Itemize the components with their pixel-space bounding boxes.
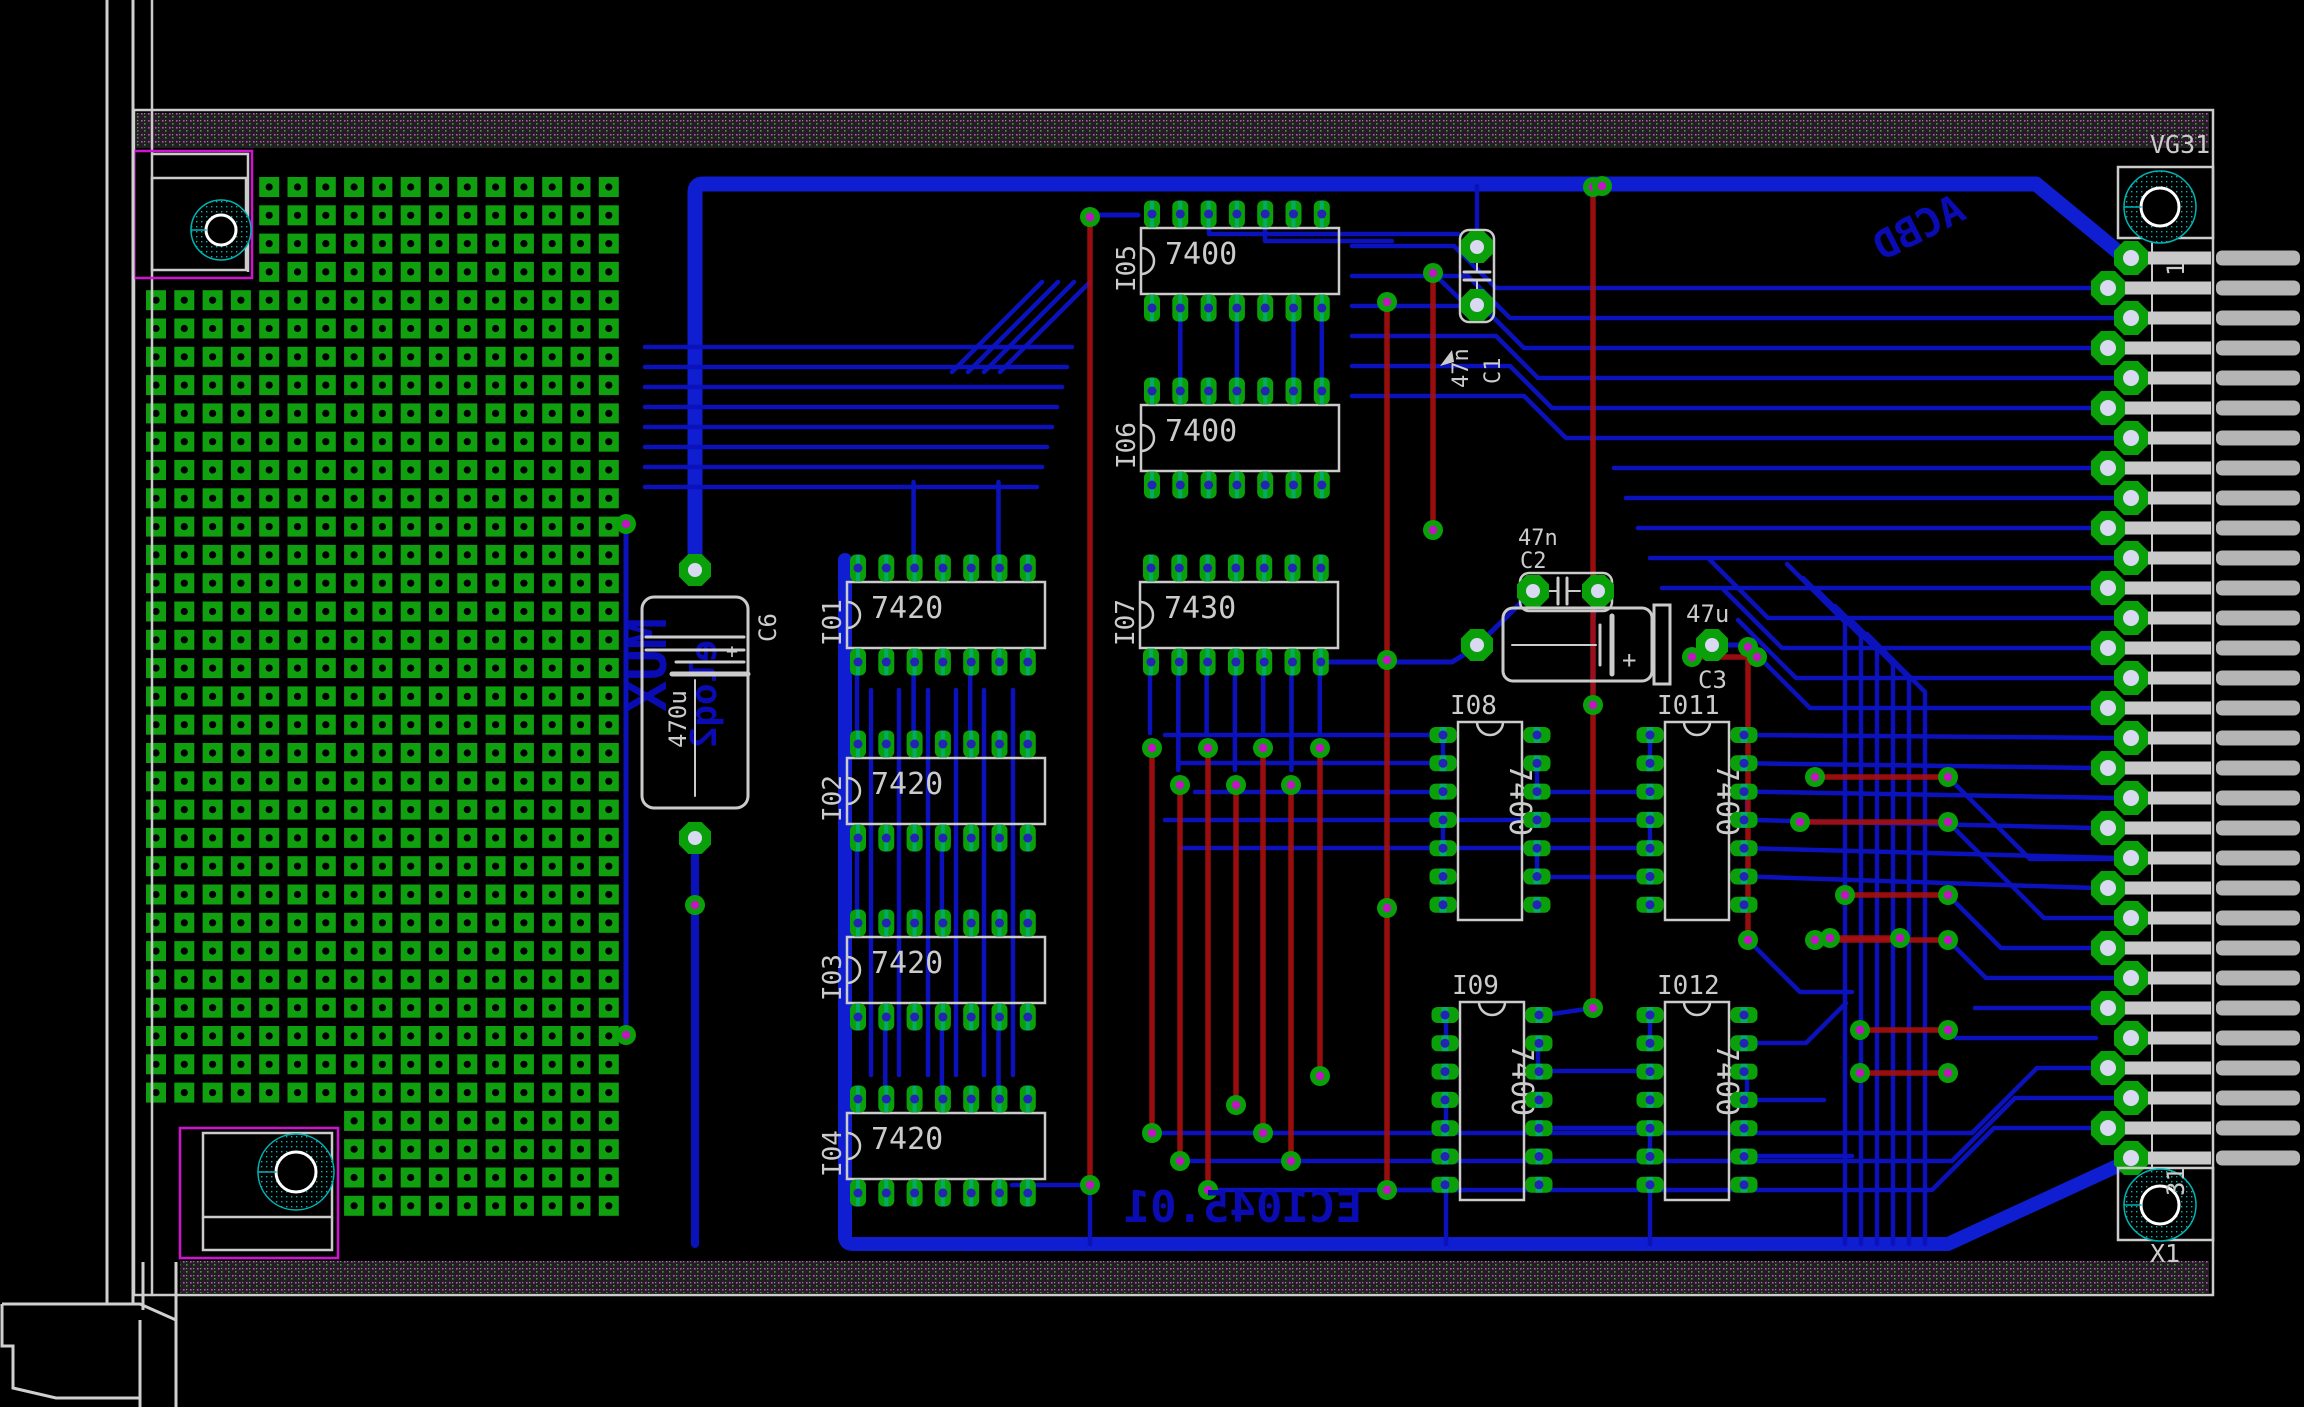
grid-pad-hole [407, 1032, 414, 1039]
component-pad[interactable] [1228, 555, 1244, 582]
grid-pad-hole [266, 863, 273, 870]
grid-pad-hole [294, 721, 301, 728]
component-pad[interactable] [1314, 472, 1330, 499]
pin-feed-trace[interactable] [1749, 763, 2095, 768]
component-pad[interactable] [1143, 555, 1159, 582]
component-pad[interactable] [878, 825, 894, 852]
component-I05[interactable]: 7400I05 [1112, 228, 1339, 294]
grid-pad-hole [492, 495, 499, 502]
component-pad[interactable] [1430, 727, 1457, 743]
connector-finger[interactable] [2216, 941, 2300, 956]
component-pad[interactable] [992, 649, 1008, 676]
component-pad[interactable] [1731, 1007, 1758, 1023]
component-pad[interactable] [963, 1004, 979, 1031]
component-pad[interactable] [1731, 897, 1758, 913]
trace[interactable] [1209, 215, 1458, 234]
component-pad[interactable] [1020, 1086, 1036, 1113]
component-pad[interactable] [1526, 1120, 1553, 1136]
component-pad[interactable] [850, 1004, 866, 1031]
grid-pad-hole [549, 1004, 556, 1011]
connector-finger[interactable] [2216, 401, 2300, 416]
component-pad[interactable] [907, 1004, 923, 1031]
connector-finger[interactable] [2216, 521, 2300, 536]
component-pad[interactable] [963, 910, 979, 937]
grid-pad-hole [407, 778, 414, 785]
component-pad[interactable] [878, 1086, 894, 1113]
component-pad[interactable] [1200, 555, 1216, 582]
component-pad[interactable] [1430, 869, 1457, 885]
grid-pad-hole [577, 834, 584, 841]
component-pad[interactable] [992, 555, 1008, 582]
trace[interactable] [1948, 895, 2096, 948]
component-pad[interactable] [1314, 201, 1330, 228]
component-pad[interactable] [1229, 295, 1245, 322]
component-pad[interactable] [878, 1180, 894, 1207]
component-pad[interactable] [1020, 1004, 1036, 1031]
component-pad[interactable] [1637, 1035, 1664, 1051]
power-bus-bottom[interactable] [845, 560, 2126, 1244]
component-pad[interactable] [935, 555, 951, 582]
component-pad[interactable] [1526, 1092, 1553, 1108]
connector-pin-hole [2100, 880, 2116, 896]
ic-notch [1684, 1002, 1710, 1015]
trace[interactable] [1748, 940, 1852, 992]
component-pad[interactable] [1314, 378, 1330, 405]
grid-pad-hole [209, 948, 216, 955]
grid-pad-hole [464, 410, 471, 417]
grid-pad-hole [407, 1202, 414, 1209]
bus-weave-trace[interactable] [1787, 564, 1845, 1244]
connector-finger[interactable] [2216, 311, 2300, 326]
component-pad[interactable] [1172, 472, 1188, 499]
grid-pad-hole [209, 693, 216, 700]
component-pad[interactable] [1432, 1120, 1459, 1136]
component-pad[interactable] [1257, 378, 1273, 405]
component-pad[interactable] [907, 731, 923, 758]
grid-pad-hole [520, 721, 527, 728]
component-I06[interactable]: 7400I06 [1112, 405, 1339, 471]
component-pad[interactable] [1637, 1007, 1664, 1023]
copper-traces-top-layer [626, 184, 2128, 1244]
grid-pad-hole [152, 551, 159, 558]
grid-pad-hole [407, 834, 414, 841]
component-pad[interactable] [1731, 755, 1758, 771]
component-pad[interactable] [1524, 727, 1551, 743]
component-pad[interactable] [1201, 201, 1217, 228]
connector-finger[interactable] [2216, 851, 2300, 866]
component-I08[interactable]: 7400I08 [1450, 691, 1537, 920]
grid-pad-hole [351, 636, 358, 643]
grid-pad-hole [294, 834, 301, 841]
component-pad[interactable] [907, 1180, 923, 1207]
grid-pad-hole [464, 382, 471, 389]
component-pad[interactable] [1201, 472, 1217, 499]
connector-finger[interactable] [2216, 251, 2300, 266]
component-pad[interactable] [1526, 1064, 1553, 1080]
component-pad[interactable] [1144, 378, 1160, 405]
component-pad[interactable] [1256, 555, 1272, 582]
connector-finger[interactable] [2216, 551, 2300, 566]
grid-pad-hole [152, 297, 159, 304]
component-pad[interactable] [1430, 840, 1457, 856]
grid-pad-hole [266, 183, 273, 190]
grid-pad-hole [379, 212, 386, 219]
component-pad[interactable] [907, 649, 923, 676]
grid-pad-hole [351, 551, 358, 558]
component-pad[interactable] [963, 555, 979, 582]
grid-pad-hole [577, 1032, 584, 1039]
component-pad[interactable] [878, 731, 894, 758]
component-pad[interactable] [1524, 784, 1551, 800]
pin-feed-trace[interactable] [1749, 735, 2118, 738]
component-pad[interactable] [907, 1086, 923, 1113]
grid-pad-hole [492, 580, 499, 587]
component-pad[interactable] [1524, 812, 1551, 828]
grid-pad-hole [181, 551, 188, 558]
grid-pad-hole [464, 1032, 471, 1039]
component-pad[interactable] [1201, 295, 1217, 322]
component-pad[interactable] [1229, 201, 1245, 228]
component-pad[interactable] [1526, 1149, 1553, 1165]
component-pad[interactable] [1637, 784, 1664, 800]
grid-pad-hole [266, 523, 273, 530]
component-pad[interactable] [1201, 378, 1217, 405]
grid-pad-hole [322, 353, 329, 360]
component-pad[interactable] [992, 1004, 1008, 1031]
component-pad[interactable] [992, 1086, 1008, 1113]
grid-pad-hole [181, 523, 188, 530]
component-pad[interactable] [878, 1004, 894, 1031]
component-pad[interactable] [1172, 201, 1188, 228]
component-I011[interactable]: 7400I011 [1657, 691, 1744, 920]
component-pad[interactable] [1020, 825, 1036, 852]
via-hole [1826, 934, 1834, 942]
component-I04[interactable]: 7420I04 [818, 1113, 1045, 1179]
component-pad[interactable] [1020, 649, 1036, 676]
connector-finger[interactable] [2216, 1151, 2300, 1166]
component-pad[interactable] [850, 731, 866, 758]
silkscreen-text: C3 [1698, 666, 1727, 694]
silkscreen-text: I06 [1112, 422, 1142, 469]
connector-finger[interactable] [2216, 671, 2300, 686]
component-pad[interactable] [1731, 1149, 1758, 1165]
grid-pad-hole [237, 382, 244, 389]
component-pad[interactable] [907, 555, 923, 582]
component-pad[interactable] [963, 649, 979, 676]
connector-finger[interactable] [2216, 581, 2300, 596]
component-pad[interactable] [1524, 840, 1551, 856]
connector-finger[interactable] [2216, 761, 2300, 776]
component-pad[interactable] [1020, 910, 1036, 937]
pin-feed-trace[interactable] [1749, 792, 2118, 798]
connector-finger[interactable] [2216, 1061, 2300, 1076]
component-pad[interactable] [1731, 1092, 1758, 1108]
component-pad[interactable] [1286, 201, 1302, 228]
component-pad[interactable] [1731, 1064, 1758, 1080]
grid-pad-hole [237, 1004, 244, 1011]
grid-pad-hole [435, 1117, 442, 1124]
component-pad[interactable] [1314, 295, 1330, 322]
component-pad[interactable] [1171, 555, 1187, 582]
component-pad[interactable] [1229, 378, 1245, 405]
connector-finger[interactable] [2216, 881, 2300, 896]
component-pad[interactable] [1637, 812, 1664, 828]
connector-finger[interactable] [2216, 911, 2300, 926]
component-pad[interactable] [1637, 1149, 1664, 1165]
component-pad[interactable] [1144, 295, 1160, 322]
connector-finger[interactable] [2216, 341, 2300, 356]
connector-finger[interactable] [2216, 491, 2300, 506]
component-pad[interactable] [1432, 1177, 1459, 1193]
component-pad[interactable] [907, 825, 923, 852]
component-pad[interactable] [1731, 784, 1758, 800]
component-pad[interactable] [935, 649, 951, 676]
component-pad[interactable] [1229, 472, 1245, 499]
via-hole [1176, 1157, 1184, 1165]
component-pad[interactable] [1020, 1180, 1036, 1207]
component-pad[interactable] [1637, 727, 1664, 743]
grid-pad-hole [435, 325, 442, 332]
grid-pad-hole [605, 551, 612, 558]
component-pad[interactable] [1637, 897, 1664, 913]
grid-pad-hole [379, 353, 386, 360]
grid-pad-hole [605, 1089, 612, 1096]
grid-pad-hole [520, 778, 527, 785]
component-pad[interactable] [1524, 897, 1551, 913]
component-pad[interactable] [1731, 1035, 1758, 1051]
silkscreen-text: I03 [818, 954, 848, 1001]
component-pad[interactable] [992, 731, 1008, 758]
grid-pad-hole [237, 749, 244, 756]
component-pad[interactable] [1430, 812, 1457, 828]
component-pad[interactable] [1731, 727, 1758, 743]
component-pad[interactable] [1172, 295, 1188, 322]
pin-feed-trace[interactable] [1749, 877, 2095, 889]
connector-finger[interactable] [2216, 821, 2300, 836]
connector-finger[interactable] [2216, 371, 2300, 386]
component-pad[interactable] [1286, 472, 1302, 499]
component-C3[interactable]: +47uC3 [1503, 600, 1729, 694]
grid-pad-hole [520, 1146, 527, 1153]
component-pad[interactable] [963, 825, 979, 852]
grid-pad-hole [549, 1146, 556, 1153]
component-pad[interactable] [1171, 649, 1187, 676]
grid-pad-hole [294, 806, 301, 813]
ic-notch [1141, 425, 1154, 451]
component-pad[interactable] [1430, 897, 1457, 913]
grid-pad-hole [464, 863, 471, 870]
grid-pad-hole [549, 297, 556, 304]
component-pad[interactable] [1430, 784, 1457, 800]
grid-pad-hole [549, 665, 556, 672]
grid-pad-hole [294, 636, 301, 643]
component-pad[interactable] [963, 731, 979, 758]
grid-pad-hole [379, 1061, 386, 1068]
component-pad[interactable] [963, 1086, 979, 1113]
grid-pad-hole [266, 438, 273, 445]
component-pad[interactable] [1020, 555, 1036, 582]
grid-pad-hole [605, 523, 612, 530]
grid-pad-hole [237, 636, 244, 643]
grid-pad-hole [209, 1032, 216, 1039]
grid-pad-hole [266, 948, 273, 955]
pin-31-label: 31 [2162, 1167, 2190, 1196]
component-pad[interactable] [935, 1004, 951, 1031]
pin-feed-trace[interactable] [1749, 848, 2118, 858]
grid-pad-hole [351, 693, 358, 700]
connector-finger[interactable] [2216, 701, 2300, 716]
component-pad[interactable] [992, 910, 1008, 937]
component-pad[interactable] [850, 825, 866, 852]
component-pad[interactable] [1731, 840, 1758, 856]
component-pad[interactable] [935, 1086, 951, 1113]
connector-label: VG31 [2150, 130, 2210, 159]
component-pad[interactable] [1432, 1007, 1459, 1023]
component-pad[interactable] [1257, 295, 1273, 322]
silkscreen-text: 47n [1449, 348, 1474, 388]
grid-pad-hole [605, 863, 612, 870]
component-pad[interactable] [1526, 1007, 1553, 1023]
component-pad[interactable] [1257, 201, 1273, 228]
via-hole [1811, 773, 1819, 781]
grid-pad-hole [294, 580, 301, 587]
component-pad[interactable] [878, 910, 894, 937]
grid-pad-hole [322, 834, 329, 841]
connector-finger[interactable] [2216, 461, 2300, 476]
connector-finger[interactable] [2216, 1091, 2300, 1106]
connector-finger[interactable] [2216, 281, 2300, 296]
grid-pad-hole [577, 608, 584, 615]
component-pad[interactable] [1432, 1035, 1459, 1051]
connector-finger[interactable] [2216, 1031, 2300, 1046]
component-pad[interactable] [1257, 472, 1273, 499]
grid-pad-hole [294, 976, 301, 983]
component-pad[interactable] [992, 1180, 1008, 1207]
connector-finger[interactable] [2216, 1121, 2300, 1136]
component-pad[interactable] [1286, 378, 1302, 405]
pcb-layout-canvas[interactable]: ACBD EC1045.01 MUX eloq2 7420I017420I027… [0, 0, 2304, 1407]
component-pad[interactable] [992, 825, 1008, 852]
grid-pad-hole [266, 834, 273, 841]
component-pad[interactable] [1143, 649, 1159, 676]
component-pad[interactable] [1731, 1177, 1758, 1193]
connector-finger[interactable] [2216, 971, 2300, 986]
component-pad[interactable] [1524, 869, 1551, 885]
connector-finger[interactable] [2216, 611, 2300, 626]
component-pad[interactable] [1144, 472, 1160, 499]
grid-pad-hole [294, 891, 301, 898]
component-pad[interactable] [1637, 755, 1664, 771]
component-pad[interactable] [850, 1086, 866, 1113]
grid-pad-hole [464, 834, 471, 841]
grid-pad-hole [577, 976, 584, 983]
component-pad[interactable] [1020, 731, 1036, 758]
component-pad[interactable] [935, 1180, 951, 1207]
component-pad[interactable] [1637, 1177, 1664, 1193]
component-pad[interactable] [1430, 755, 1457, 771]
grid-pad-hole [549, 636, 556, 643]
trace[interactable] [1948, 1030, 2096, 1038]
component-pad[interactable] [850, 1180, 866, 1207]
grid-pad-hole [379, 466, 386, 473]
component-pad[interactable] [963, 1180, 979, 1207]
connector-finger[interactable] [2216, 641, 2300, 656]
pin-feed-trace[interactable] [1352, 396, 2118, 438]
component-pad[interactable] [1228, 649, 1244, 676]
connector-finger[interactable] [2216, 1001, 2300, 1016]
component-pad[interactable] [1637, 1064, 1664, 1080]
grid-pad-hole [549, 1202, 556, 1209]
grid-pad-hole [181, 1089, 188, 1096]
grid-pad-hole [492, 948, 499, 955]
component-I012[interactable]: 7400I012 [1657, 971, 1744, 1200]
grid-pad-hole [379, 693, 386, 700]
connector-finger[interactable] [2216, 731, 2300, 746]
component-pad[interactable] [878, 555, 894, 582]
component-pad[interactable] [935, 910, 951, 937]
component-pad[interactable] [1731, 869, 1758, 885]
component-pad[interactable] [1526, 1177, 1553, 1193]
component-pad[interactable] [1313, 649, 1329, 676]
component-pad[interactable] [850, 649, 866, 676]
component-pad[interactable] [1256, 649, 1272, 676]
grid-pad-hole [605, 240, 612, 247]
component-I09[interactable]: 7400I09 [1452, 971, 1539, 1200]
grid-pad-hole [407, 523, 414, 530]
bus-weave-trace[interactable] [1819, 592, 1877, 1244]
connector-finger[interactable] [2216, 431, 2300, 446]
grid-pad-hole [181, 749, 188, 756]
component-pad[interactable] [1731, 1120, 1758, 1136]
component-pad[interactable] [850, 555, 866, 582]
connector-finger[interactable] [2216, 791, 2300, 806]
grid-pad-hole [351, 382, 358, 389]
component-I07[interactable]: 7430I07 [1111, 582, 1338, 648]
component-pad[interactable] [1432, 1064, 1459, 1080]
component-pad[interactable] [1200, 649, 1216, 676]
grid-pad-hole [209, 438, 216, 445]
edge-connector[interactable] [2091, 241, 2300, 1175]
component-pad[interactable] [1285, 649, 1301, 676]
component-pad[interactable] [1637, 1120, 1664, 1136]
component-pad[interactable] [1313, 555, 1329, 582]
component-pad[interactable] [1172, 378, 1188, 405]
component-pad[interactable] [1286, 295, 1302, 322]
grid-pad-hole [577, 1004, 584, 1011]
component-pad[interactable] [1524, 755, 1551, 771]
grid-pad-hole [294, 1089, 301, 1096]
grid-pad-hole [549, 891, 556, 898]
component-pad[interactable] [935, 731, 951, 758]
component-pad[interactable] [935, 825, 951, 852]
component-pad[interactable] [1731, 812, 1758, 828]
component-pad[interactable] [907, 910, 923, 937]
component-pad[interactable] [1432, 1092, 1459, 1108]
component-pad[interactable] [878, 649, 894, 676]
component-pad[interactable] [1526, 1035, 1553, 1051]
trace[interactable] [1747, 1003, 1846, 1043]
component-pad[interactable] [1637, 1092, 1664, 1108]
grid-pad-hole [266, 665, 273, 672]
component-pad[interactable] [1144, 201, 1160, 228]
component-pad[interactable] [1432, 1149, 1459, 1165]
component-pad[interactable] [1285, 555, 1301, 582]
component-I01[interactable]: 7420I01 [818, 582, 1045, 648]
grid-pad-hole [294, 1004, 301, 1011]
component-pad[interactable] [1637, 869, 1664, 885]
component-pad[interactable] [850, 910, 866, 937]
component-pad[interactable] [1637, 840, 1664, 856]
